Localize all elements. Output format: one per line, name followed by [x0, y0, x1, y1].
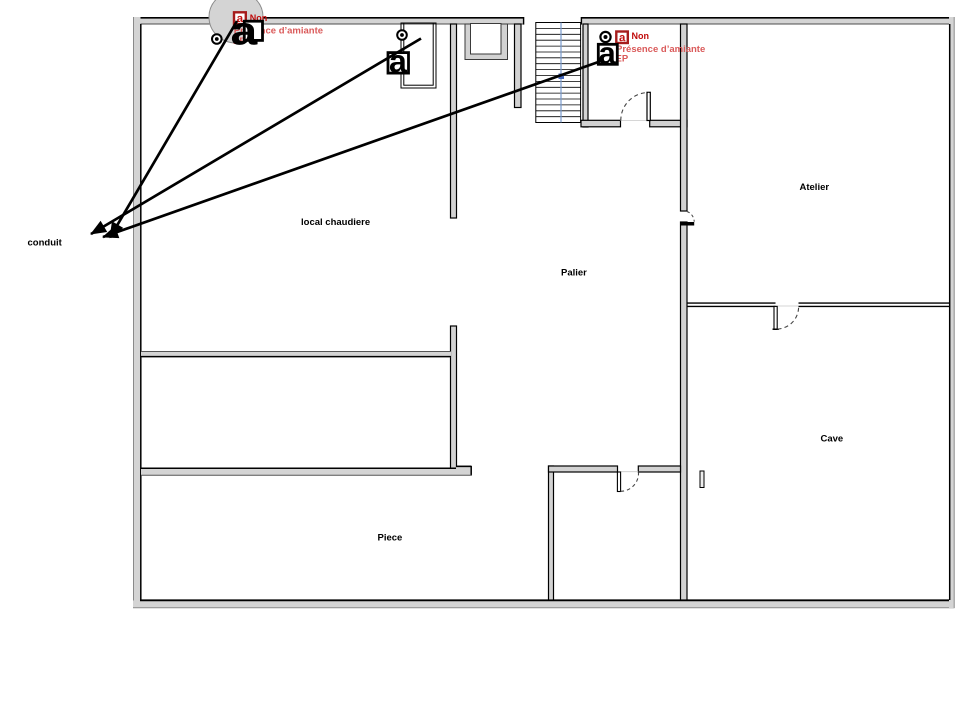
- svg-text:Présence d’amiante: Présence d’amiante: [616, 44, 705, 55]
- svg-text:Piece: Piece: [378, 533, 403, 544]
- svg-text:Non: Non: [632, 31, 650, 41]
- svg-text:Cave: Cave: [821, 434, 844, 445]
- svg-text:conduit: conduit: [28, 238, 63, 249]
- svg-text:Atelier: Atelier: [800, 182, 830, 193]
- svg-text:Palier: Palier: [561, 268, 587, 279]
- svg-text:local chaudiere: local chaudiere: [301, 217, 370, 228]
